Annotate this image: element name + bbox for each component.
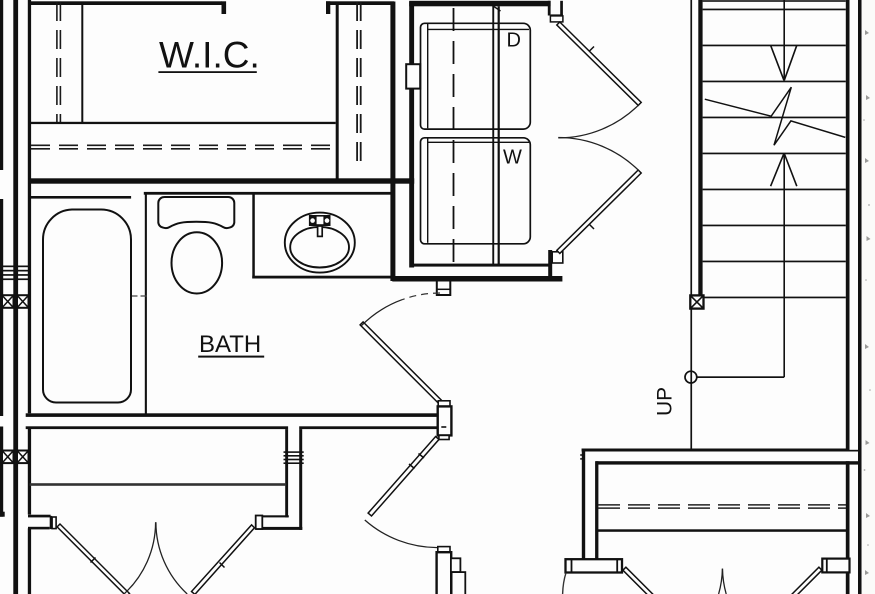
svg-text:W.I.C.: W.I.C. [159,35,260,76]
svg-text:D: D [507,29,521,51]
svg-text:BATH: BATH [199,331,261,358]
svg-text:UP: UP [654,387,677,416]
svg-text:W: W [503,146,522,168]
